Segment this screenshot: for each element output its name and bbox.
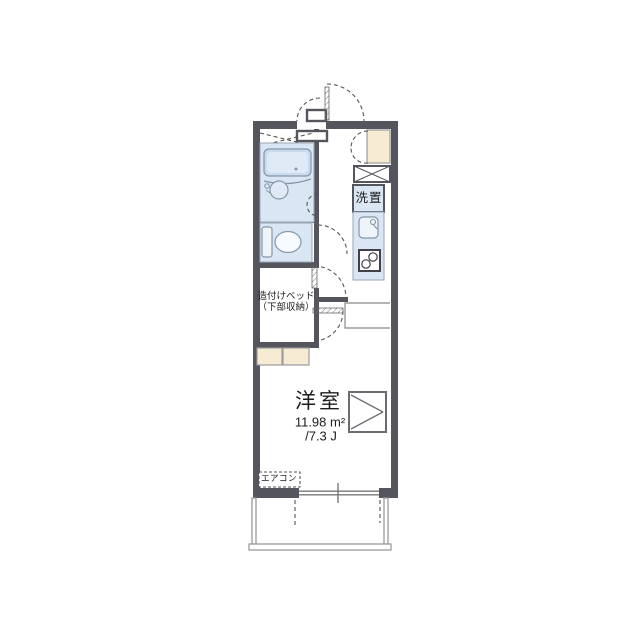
toilet-door-arc <box>318 225 347 254</box>
washing-machine-label: 洗置 <box>355 191 382 205</box>
toilet-icon <box>275 232 301 253</box>
floor-plan-drawing <box>0 0 640 640</box>
wall-right <box>391 121 398 498</box>
built-in-bed-label: 造付けベッド （下部収納） <box>257 292 314 314</box>
appliance-box <box>349 392 386 432</box>
stove-icon <box>359 250 380 271</box>
room-area-tatami-label: /7.3 J <box>305 430 337 445</box>
wall-top-right <box>326 121 398 129</box>
wall-bathroom-right <box>314 129 319 268</box>
cabinet-door-arc-bottom <box>351 148 368 163</box>
shoe-cabinet-box <box>367 130 390 163</box>
bathroom <box>260 143 318 222</box>
entrance-door-leaf <box>325 87 329 120</box>
bathtub-inner <box>267 152 308 173</box>
window-opening <box>299 488 379 498</box>
air-conditioner-label: エアコン <box>261 474 297 484</box>
floor-plan: 洗置 造付けベッド （下部収納） 洋室 11.98 m² /7.3 J エアコン… <box>0 0 640 640</box>
balcony-side-left <box>252 498 256 544</box>
room-door-leaf <box>312 266 317 288</box>
bed-step-storage <box>257 348 309 365</box>
room-name-label: 洋室 <box>295 390 343 414</box>
shoe-cabinet <box>351 130 390 163</box>
entrance-door-frame <box>307 110 326 121</box>
refrigerator-space <box>345 303 390 328</box>
cabinet-door-arc-top <box>351 131 368 148</box>
bed-step-box <box>283 348 309 365</box>
wall-bottom-right <box>379 488 398 498</box>
main-window <box>299 483 379 503</box>
balcony-side-right <box>384 498 388 544</box>
wall-bottom-left <box>253 488 299 498</box>
entrance <box>297 84 364 141</box>
entrance-door-swing-arc <box>327 84 364 121</box>
room-door-leaf-2 <box>313 308 343 313</box>
storage-box <box>354 166 390 182</box>
balcony <box>249 498 391 550</box>
bed-step-box <box>257 348 282 365</box>
washbasin-icon <box>270 181 288 199</box>
wall-stub-kitchen <box>314 297 348 302</box>
built-in-bed-label-line2: （下部収納） <box>257 303 314 314</box>
balcony-rail <box>249 544 391 550</box>
toilet-tank <box>262 227 272 257</box>
wall-bed-bottom <box>253 342 314 348</box>
bathtub-drain <box>295 168 298 171</box>
appliance-space-marker <box>349 392 386 432</box>
wall-toilet-bed-divider <box>260 262 314 268</box>
toilet-room <box>260 223 347 262</box>
